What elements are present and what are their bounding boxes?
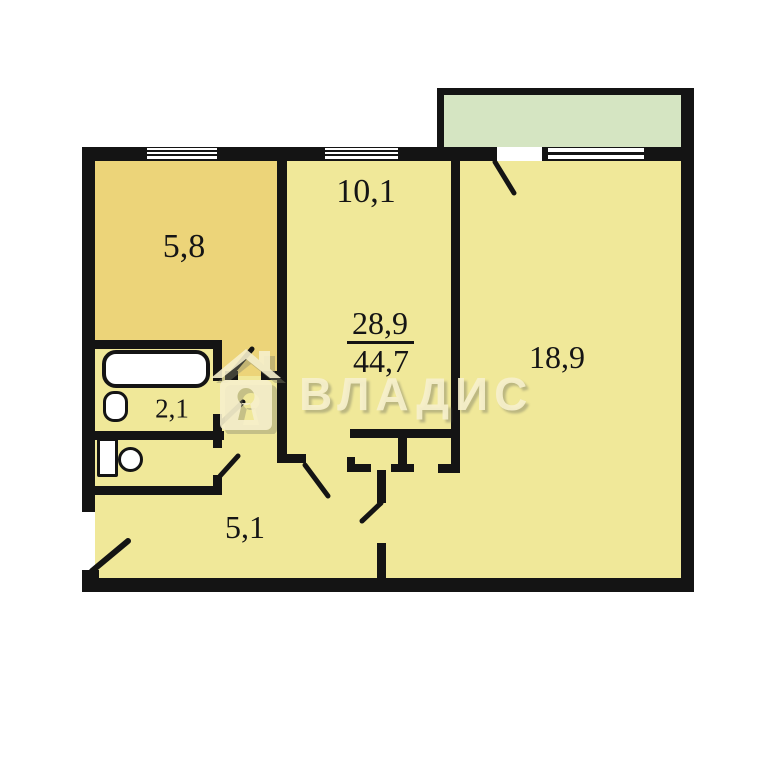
room-large-door-leaf [362, 503, 381, 521]
floorplan: 5,8 10,1 18,9 2,1 5,1 28,9 44,7 ВЛАДИС [0, 0, 768, 768]
toilet-door-leaf [220, 456, 238, 476]
watermark-brand-text: ВЛАДИС [299, 367, 549, 421]
house-keyhole-icon [206, 344, 290, 434]
room-small-door-leaf [305, 465, 328, 496]
entrance-door-leaf [92, 541, 128, 571]
balcony-door-leaf [495, 162, 514, 193]
